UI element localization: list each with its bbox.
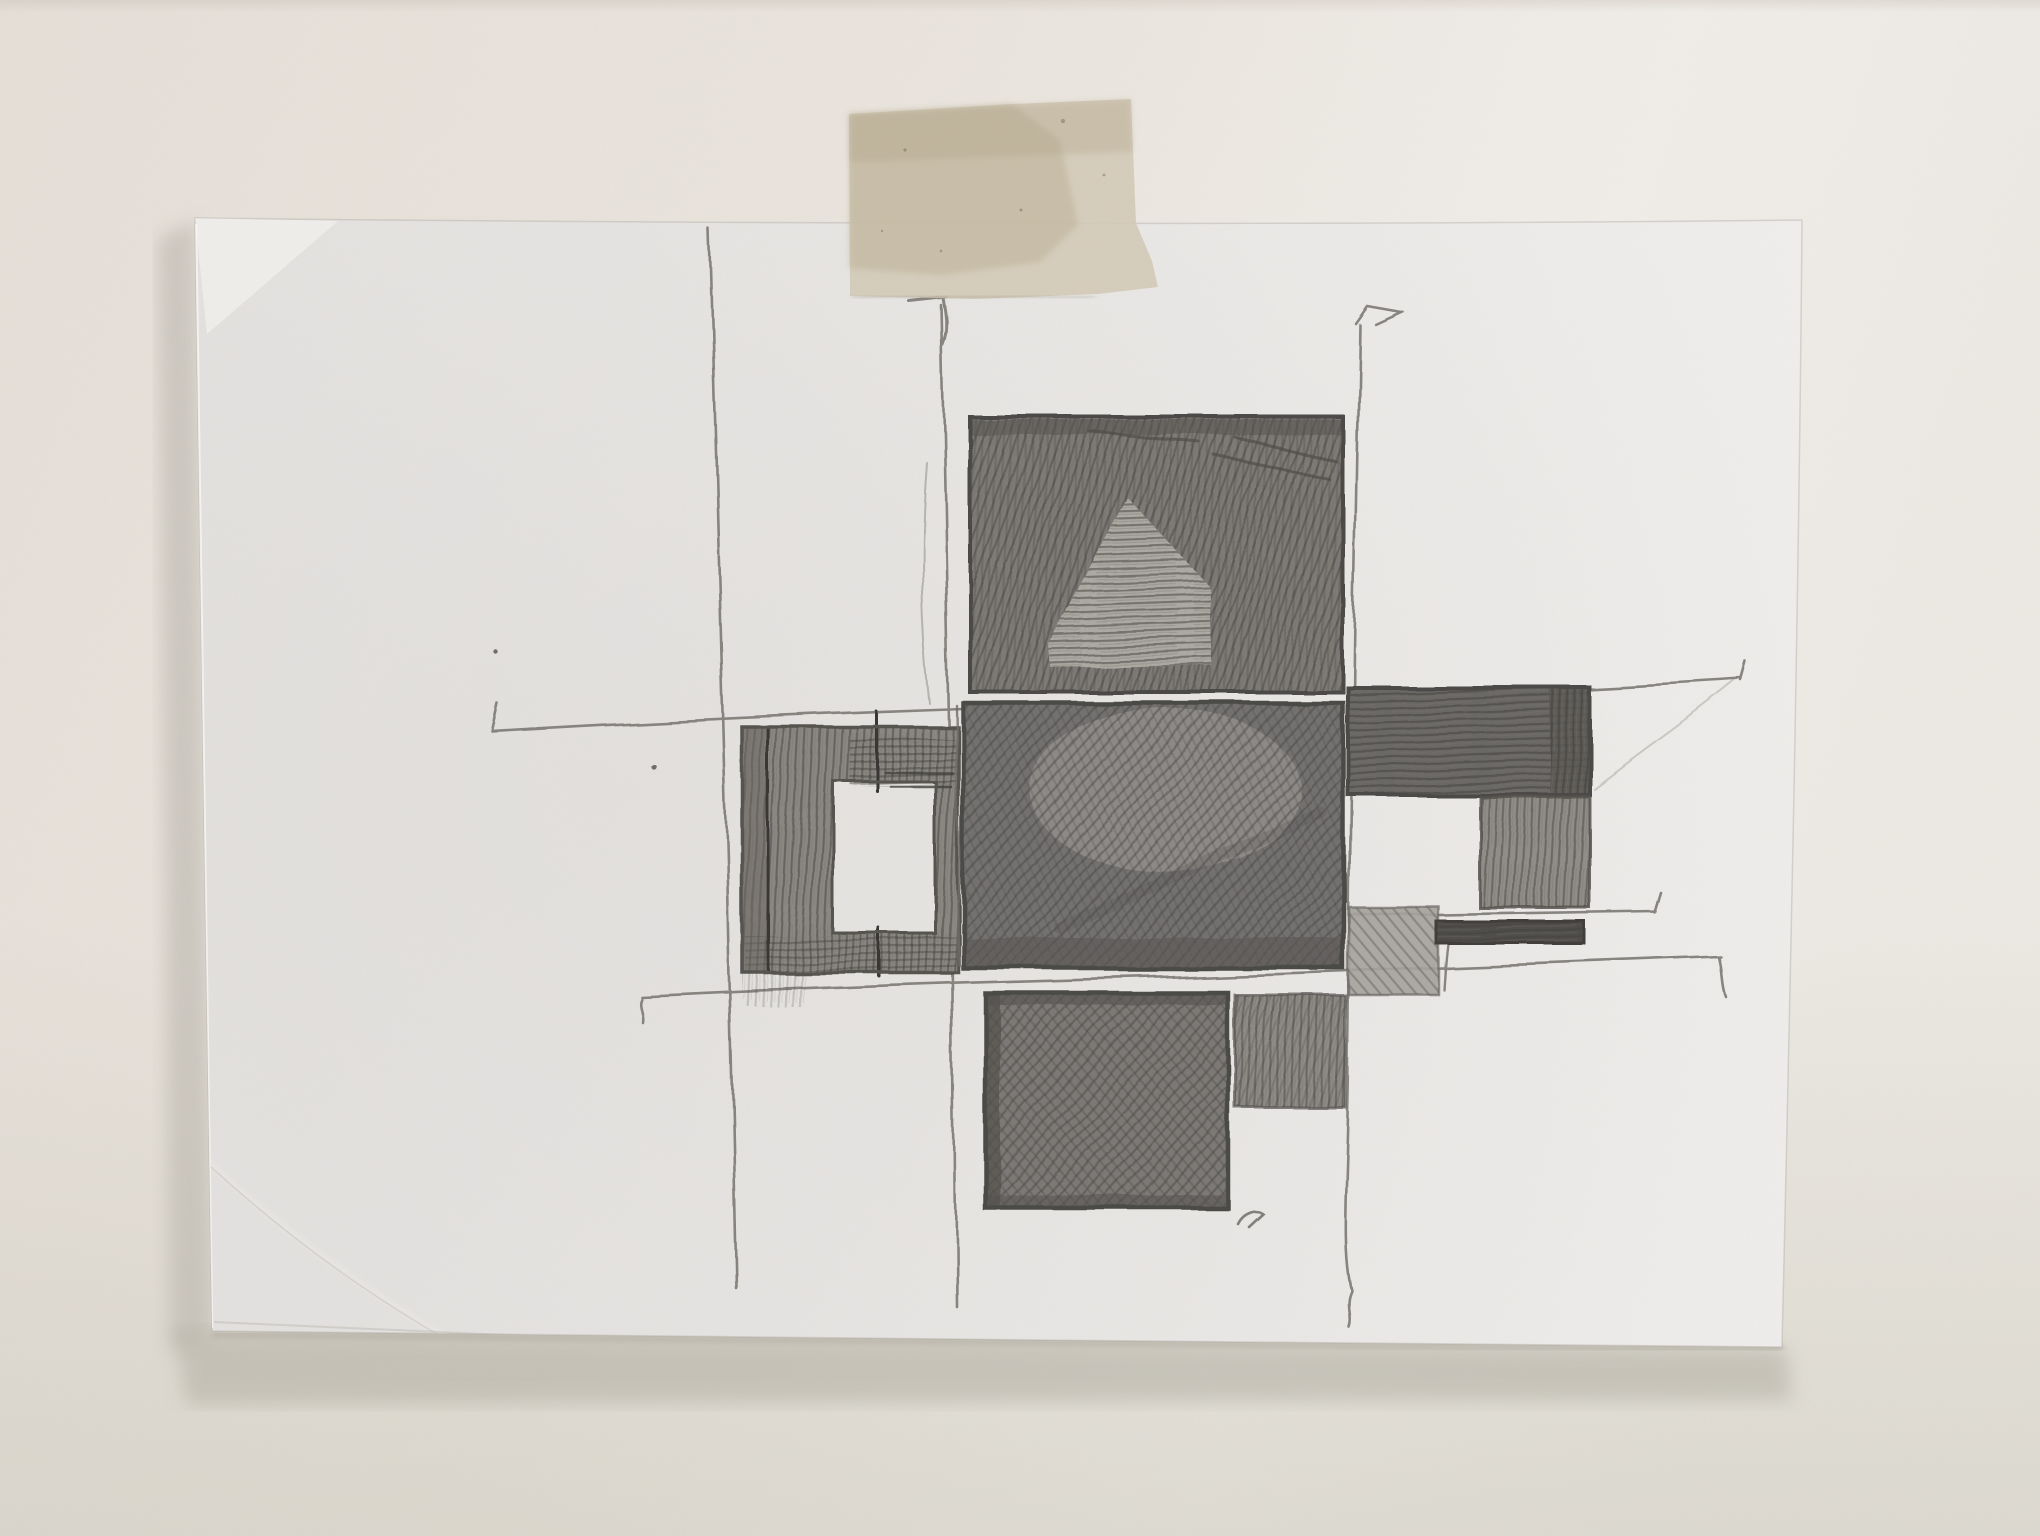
photo-grain-overlay xyxy=(0,0,2040,1536)
sketch-photo-canvas: Photograph of a hand-drawn graphite stud… xyxy=(0,0,2040,1536)
photo-of-sketch: Pencil sketch on white paper taped to a … xyxy=(0,0,2040,1536)
